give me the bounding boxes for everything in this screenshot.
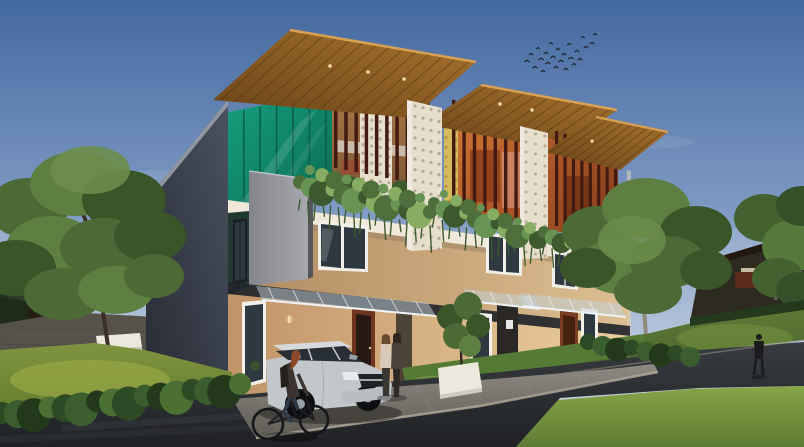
breeze-hole [437, 247, 440, 250]
breeze-hole [544, 165, 547, 168]
breeze-hole [429, 129, 432, 132]
bar [243, 110, 245, 208]
breeze-hole [379, 146, 382, 149]
canopy-downlight [328, 64, 332, 68]
breeze-hole [361, 143, 364, 146]
breeze-hole [421, 244, 424, 247]
breeze-hole [437, 152, 440, 155]
breeze-hole [544, 145, 547, 148]
breeze-hole [413, 179, 416, 182]
wall-lamp-glow [285, 315, 293, 323]
breeze-hole [413, 189, 416, 192]
breeze-hole [544, 255, 547, 258]
breeze-hole [429, 171, 432, 174]
foliage-blob [497, 213, 513, 229]
breeze-hole [413, 157, 416, 160]
foliage-blob [399, 190, 417, 208]
canopy-downlight [590, 139, 593, 142]
breeze-hole [379, 120, 382, 123]
breeze-hole [445, 156, 448, 159]
breeze-hole [534, 193, 537, 196]
breeze-hole [429, 161, 432, 164]
foliage-blob [325, 171, 343, 189]
breeze-hole [534, 133, 537, 136]
breeze-hole [445, 146, 448, 149]
foliage-blob [378, 184, 388, 194]
foliage-blob [514, 217, 522, 225]
breeze-hole [445, 185, 448, 188]
breeze-hole [370, 162, 373, 165]
breeze-hole [437, 237, 440, 240]
render-canvas [0, 0, 804, 447]
breeze-hole [379, 154, 382, 157]
breeze-hole [445, 165, 448, 168]
foliage-blob [362, 181, 380, 199]
breeze-hole [525, 191, 528, 194]
distant-roof [741, 268, 755, 272]
breeze-hole [534, 253, 537, 256]
breeze-hole [445, 175, 448, 178]
breeze-hole [413, 126, 416, 129]
breeze-hole [437, 173, 440, 176]
breeze-hole [544, 215, 547, 218]
breeze-hole [421, 159, 424, 162]
foliage-blob [477, 204, 485, 212]
breeze-hole [387, 181, 390, 184]
canopy-downlight [530, 108, 533, 111]
breeze-hole [379, 171, 382, 174]
foliage-blob [524, 222, 536, 234]
breeze-hole [534, 163, 537, 166]
breeze-hole [429, 150, 432, 153]
breeze-hole [437, 131, 440, 134]
breeze-hole [437, 184, 440, 187]
breeze-hole [370, 119, 373, 122]
breeze-hole [525, 201, 528, 204]
breeze-hole [437, 120, 440, 123]
breeze-hole [437, 109, 440, 112]
breeze-hole [370, 144, 373, 147]
foliage-blob [450, 195, 462, 207]
breeze-hole [534, 203, 537, 206]
canopy-downlight [366, 70, 370, 74]
breeze-hole [544, 135, 547, 138]
breeze-hole [370, 127, 373, 130]
breeze-hole [525, 181, 528, 184]
breeze-hole [361, 160, 364, 163]
breeze-hole [413, 104, 416, 107]
breeze-hole [370, 136, 373, 139]
foliage-blob [305, 165, 315, 175]
breeze-hole [421, 106, 424, 109]
tower-trim [407, 100, 412, 251]
foliage-blob [415, 193, 425, 203]
breeze-hole [361, 117, 364, 120]
breeze-hole [379, 137, 382, 140]
breeze-hole [525, 131, 528, 134]
foliage-blob [342, 174, 352, 184]
breeze-hole [445, 136, 448, 139]
breeze-hole [534, 153, 537, 156]
breeze-hole [421, 138, 424, 141]
breeze-block-tower-b [407, 100, 442, 251]
breeze-hole [437, 141, 440, 144]
breeze-hole [421, 180, 424, 183]
breeze-hole [361, 126, 364, 129]
breeze-hole [534, 183, 537, 186]
glass-plant-reflection [250, 361, 260, 371]
breeze-hole [525, 151, 528, 154]
breeze-hole [429, 108, 432, 111]
breeze-hole [413, 147, 416, 150]
canopy-downlight [402, 77, 406, 81]
architectural-render [0, 0, 804, 447]
breeze-hole [421, 127, 424, 130]
breeze-hole [413, 168, 416, 171]
breeze-hole [544, 205, 547, 208]
breeze-hole [429, 118, 432, 121]
breeze-hole [534, 213, 537, 216]
breeze-hole [544, 175, 547, 178]
breeze-hole [437, 162, 440, 165]
breeze-hole [544, 155, 547, 158]
breeze-hole [379, 180, 382, 183]
breeze-hole [361, 135, 364, 138]
breeze-hole [429, 193, 432, 196]
figures-shadow [377, 395, 407, 402]
breeze-hole [421, 117, 424, 120]
foliage-blob [487, 208, 499, 220]
breeze-hole [413, 136, 416, 139]
breeze-hole [437, 226, 440, 229]
breeze-hole [534, 143, 537, 146]
breeze-hole [421, 170, 424, 173]
breeze-hole [379, 163, 382, 166]
breeze-hole [413, 115, 416, 118]
breeze-hole [429, 140, 432, 143]
tall-dark-window [233, 218, 247, 285]
breeze-hole [544, 185, 547, 188]
door-plate [506, 320, 513, 329]
foliage-blob [680, 347, 700, 367]
foliage-blob [440, 190, 448, 198]
canopy-downlight [498, 102, 501, 105]
breeze-hole [379, 129, 382, 132]
breeze-hole [413, 242, 416, 245]
breeze-hole [370, 170, 373, 173]
breeze-hole [534, 173, 537, 176]
breeze-hole [525, 141, 528, 144]
breeze-hole [421, 149, 424, 152]
breeze-hole [361, 152, 364, 155]
car-headlight [342, 372, 359, 380]
breeze-hole [544, 195, 547, 198]
breeze-hole [361, 169, 364, 172]
foliage-blob [229, 373, 251, 395]
foliage-blob [461, 199, 477, 215]
breeze-hole [429, 182, 432, 185]
breeze-hole [525, 161, 528, 164]
breeze-hole [370, 153, 373, 156]
breeze-hole [525, 171, 528, 174]
breeze-hole [525, 211, 528, 214]
